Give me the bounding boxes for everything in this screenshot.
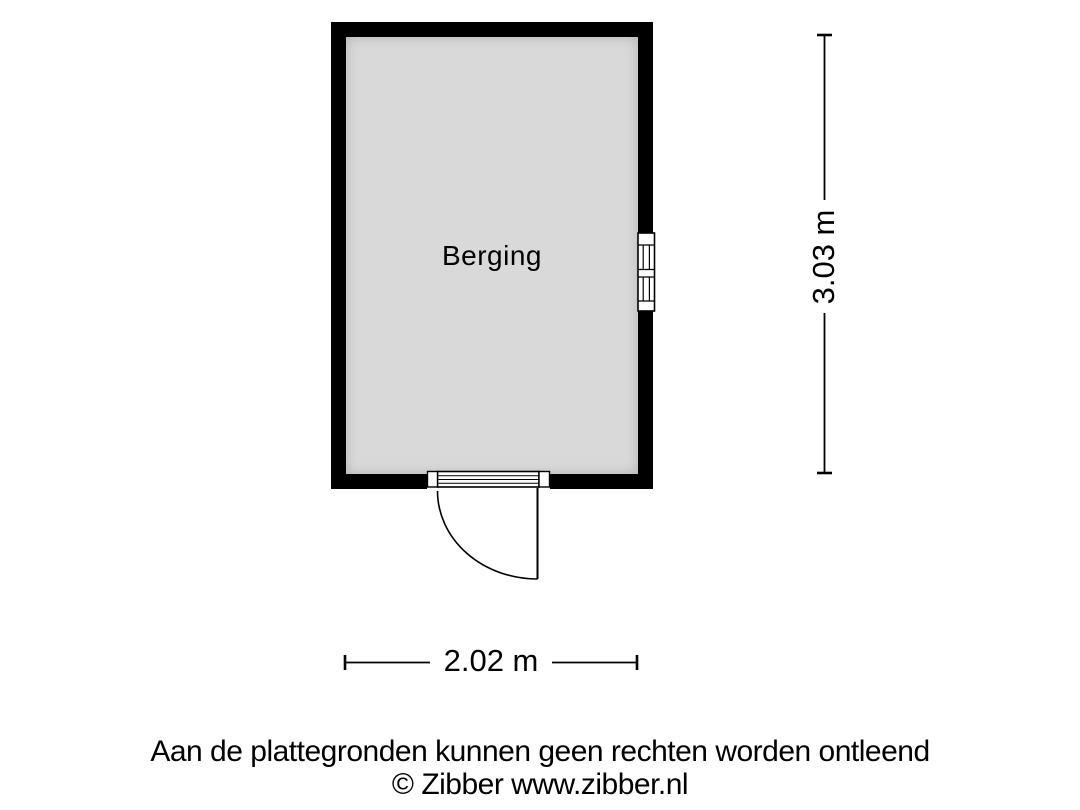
footer-copyright: © Zibber www.zibber.nl: [0, 768, 1080, 802]
dimension-height-label: 3.03 m: [806, 210, 842, 305]
room-label: Berging: [346, 241, 638, 271]
dimension-width-label: 2.02 m: [444, 643, 539, 679]
floorplan-canvas: Berging: [0, 0, 1080, 810]
footer-disclaimer: Aan de plattegronden kunnen geen rechten…: [0, 735, 1080, 769]
door-swing-icon: [438, 488, 538, 579]
